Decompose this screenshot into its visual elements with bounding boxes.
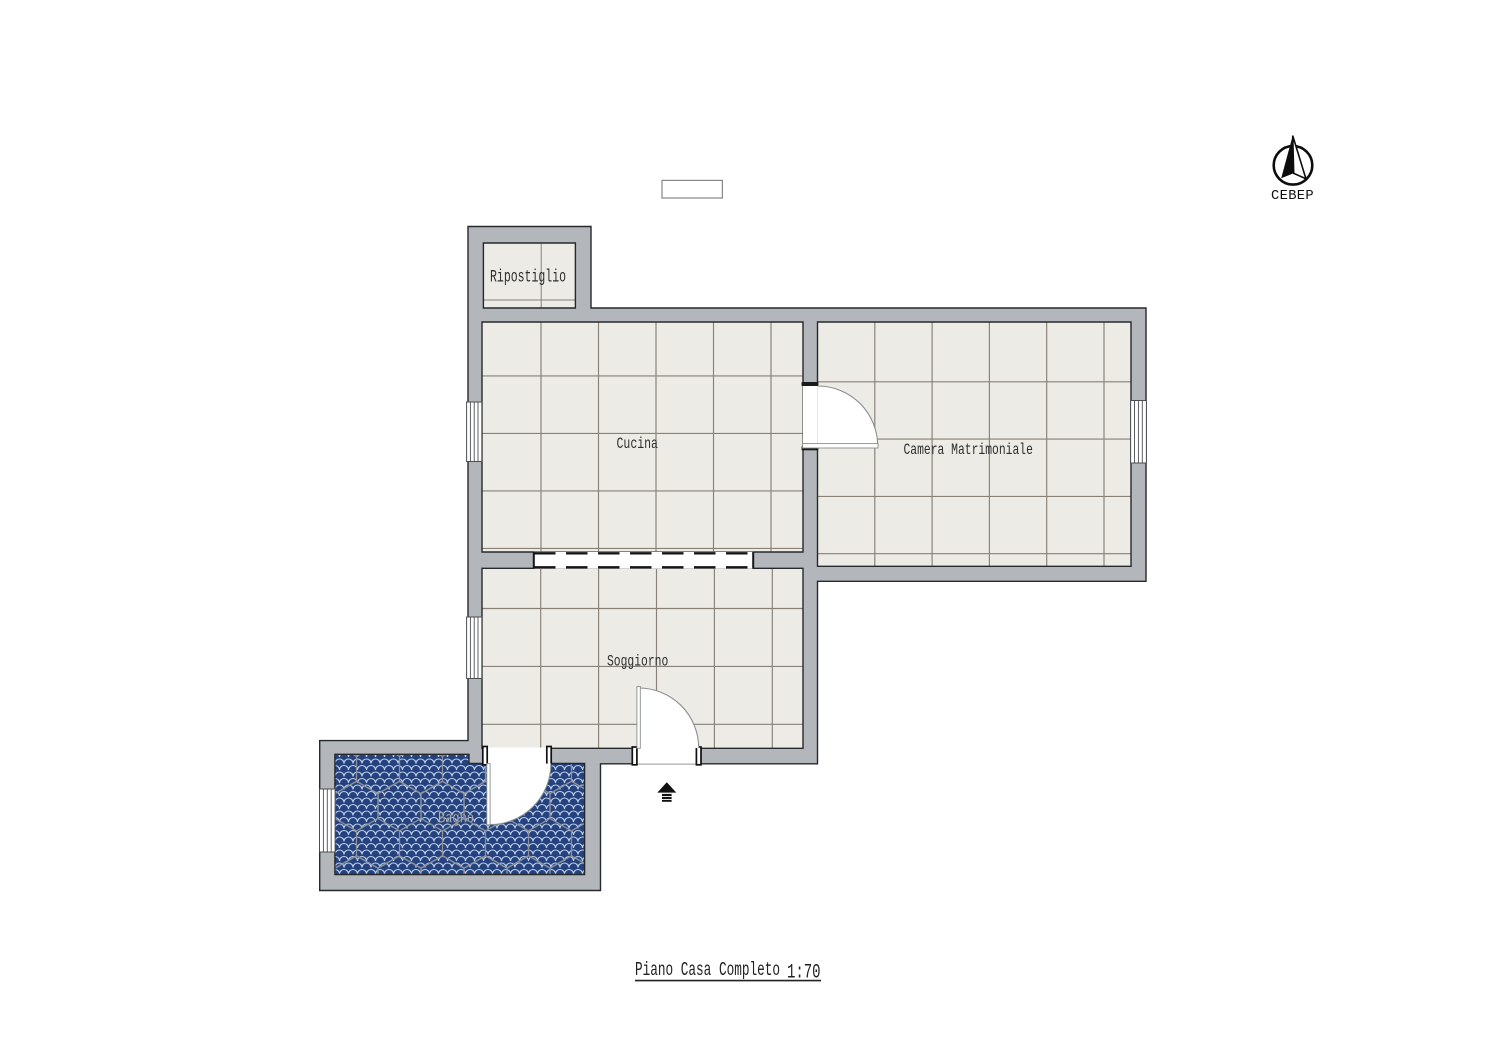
svg-text:Cucina: Cucina [617,435,658,453]
svg-text:Camera Matrimoniale: Camera Matrimoniale [904,441,1033,459]
svg-text:Ripostiglio: Ripostiglio [490,266,566,287]
svg-text:Piano Casa Completo: Piano Casa Completo [635,960,780,981]
svg-text:Soggiorno: Soggiorno [607,653,668,671]
svg-text:Bagno: Bagno [438,810,474,828]
svg-text:СЕВЕР: СЕВЕР [1271,189,1314,204]
